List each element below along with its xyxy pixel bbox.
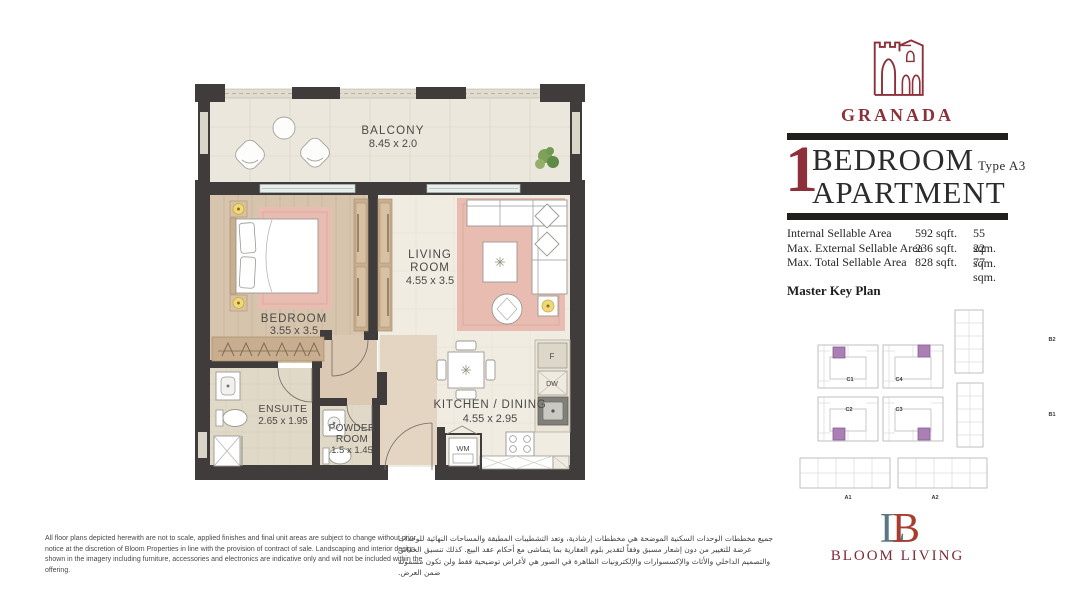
bed-headboard — [230, 218, 236, 294]
bloom-living-logo: L B — [866, 504, 930, 548]
area-sqm: 77 sqm. — [973, 255, 1008, 285]
table-row: Max. Total Sellable Area 828 sqft. 77 sq… — [787, 255, 1008, 270]
label-c4: C4 — [895, 377, 903, 383]
kitchen-label: KITCHEN / DINING — [433, 399, 546, 411]
area-label: Max. External Sellable Area — [787, 241, 923, 256]
shower — [214, 436, 242, 466]
living-label-1: LIVING — [408, 249, 452, 261]
building-a1 — [800, 458, 890, 488]
bedroom-label: BEDROOM — [261, 313, 327, 325]
keyplan-heading: Master Key Plan — [787, 283, 881, 299]
disclaimer-english: All floor plans depicted herewith are no… — [45, 534, 423, 576]
fridge-label: F — [550, 352, 555, 361]
lounge-chair — [492, 294, 522, 324]
castle-arch-small — [902, 75, 909, 95]
pillow — [239, 222, 256, 253]
label-a1: A1 — [844, 495, 851, 501]
balcony-table — [273, 117, 295, 139]
dining-chair — [486, 360, 495, 380]
base-counter — [480, 456, 569, 469]
table-row: Max. External Sellable Area 236 sqft. 22… — [787, 241, 1008, 256]
hall-floor — [380, 335, 437, 465]
toilet — [216, 410, 247, 427]
vestibule-floor — [320, 335, 377, 405]
building-c2 — [818, 397, 878, 441]
label-b1: B1 — [1048, 412, 1055, 418]
coffee-table — [483, 242, 517, 282]
unit-highlight — [833, 428, 845, 440]
dining-chair — [456, 390, 476, 399]
floor-plan-drawing: F DW — [190, 82, 590, 512]
divider-bar-top — [787, 133, 1008, 140]
pillow — [239, 257, 256, 289]
label-c1: C1 — [846, 377, 853, 383]
building-b1 — [957, 383, 983, 447]
area-sqft: 592 sqft. — [915, 226, 957, 241]
powder-label-1: POWDER — [329, 423, 376, 434]
stove — [506, 432, 534, 456]
dining-chair — [456, 341, 476, 350]
label-a2: A2 — [931, 495, 938, 501]
dishwasher-label: DW — [546, 381, 558, 388]
unit-title: BEDROOMType A3 APARTMENT — [812, 146, 1026, 206]
unit-type: Type A3 — [978, 158, 1026, 173]
project-name: GRANADA — [787, 105, 1008, 126]
balcony-dims: 8.45 x 2.0 — [369, 138, 417, 150]
sellable-area-table: Internal Sellable Area 592 sqft. 55 sqm.… — [787, 226, 1008, 270]
castle-window — [907, 51, 914, 61]
area-sqft: 828 sqft. — [915, 255, 957, 270]
living-furniture — [457, 198, 567, 331]
floorplan-brochure-page: F DW — [0, 0, 1069, 601]
powder-label-2: ROOM — [336, 434, 368, 445]
castle-arch-large — [882, 59, 895, 95]
kitchen-dims: 4.55 x 2.95 — [463, 413, 517, 425]
brand-name: BLOOM LIVING — [787, 548, 1008, 565]
living-dims: 4.55 x 3.5 — [406, 275, 454, 287]
bedroom-dims: 3.55 x 3.5 — [270, 325, 318, 337]
title-bedroom: BEDROOM — [812, 142, 974, 177]
building-c3 — [883, 397, 943, 441]
side-table — [538, 296, 558, 316]
castle-arch-small — [913, 75, 920, 95]
monogram-b: B — [892, 506, 920, 548]
washer-label: WM — [456, 444, 469, 453]
building-b2 — [955, 310, 983, 373]
label-b2: B2 — [1048, 337, 1055, 343]
bedroom-wardrobe — [354, 199, 368, 331]
label-c2: C2 — [845, 407, 852, 413]
divider-bar-bottom — [787, 213, 1008, 220]
building-a2 — [898, 458, 987, 488]
label-c3: C3 — [895, 407, 902, 413]
disclaimer-arabic: جميع مخططات الوحدات السكنية الموضحة هي م… — [398, 533, 780, 578]
ensuite-label: ENSUITE — [258, 403, 307, 415]
living-label-2: ROOM — [410, 262, 450, 274]
area-label: Internal Sellable Area — [787, 226, 892, 241]
balcony-label: BALCONY — [361, 125, 424, 137]
area-sqft: 236 sqft. — [915, 241, 957, 256]
table-row: Internal Sellable Area 592 sqft. 55 sqm. — [787, 226, 1008, 241]
bedroom-closet — [212, 337, 324, 361]
tv-unit — [378, 199, 392, 331]
master-key-plan: C1 C4 C2 C3 B2 B1 A1 A2 — [793, 303, 1063, 508]
powder-dims: 1.5 x 1.45 — [331, 445, 373, 456]
granada-logo — [866, 36, 930, 100]
dining-chair — [437, 360, 446, 380]
unit-highlight — [918, 428, 930, 440]
unit-highlight — [918, 345, 930, 357]
vanity-sink — [216, 372, 240, 400]
unit-highlight — [833, 347, 845, 358]
area-label: Max. Total Sellable Area — [787, 255, 907, 270]
unit-title-line2: APARTMENT — [812, 179, 1026, 206]
ensuite-dims: 2.65 x 1.95 — [258, 416, 308, 427]
building-c4 — [883, 345, 943, 388]
